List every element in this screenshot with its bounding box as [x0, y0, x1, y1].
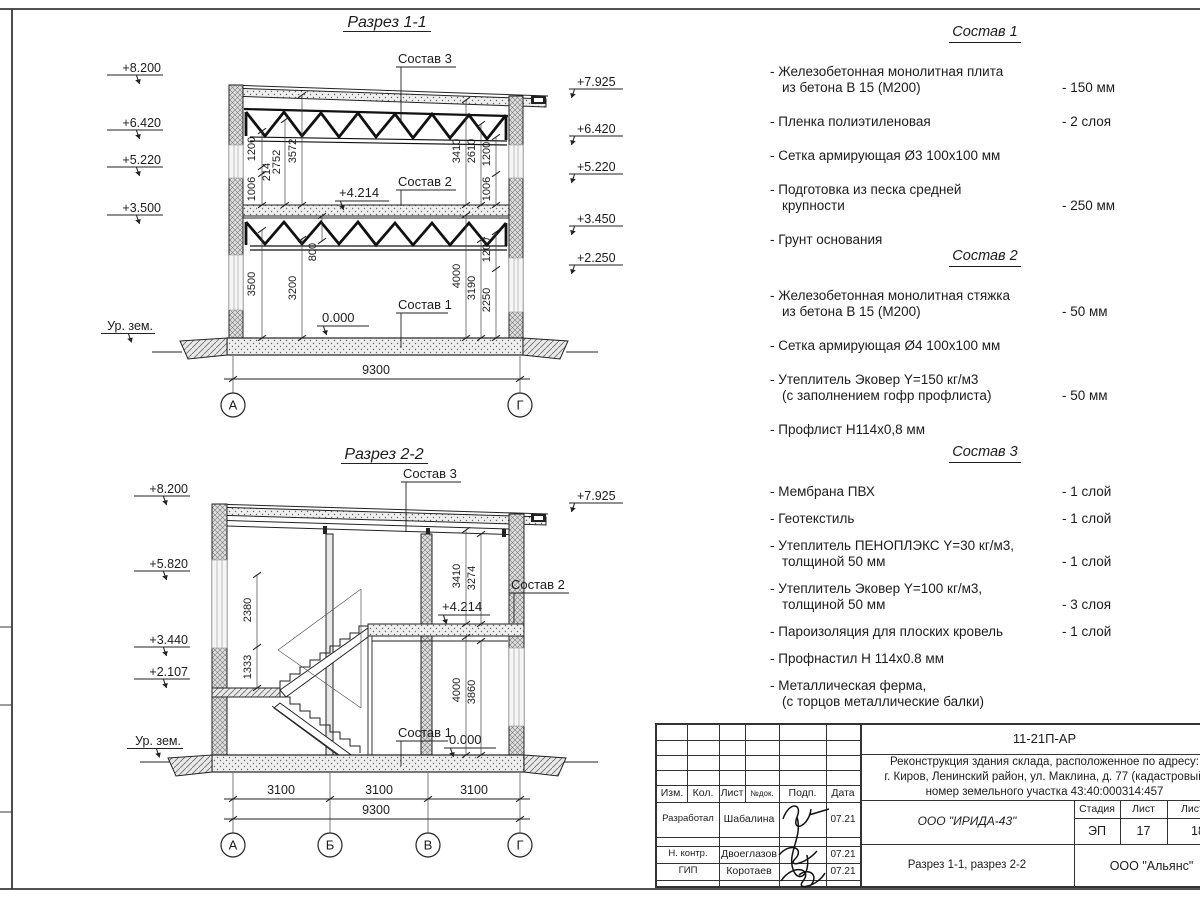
list-item: - Пароизоляция для плоских кровель- 1 сл…	[770, 624, 1200, 640]
dim: 2250	[481, 288, 493, 312]
ground-slab	[152, 338, 598, 359]
list-item: - Железобетонная монолитная плита из бет…	[770, 64, 1200, 96]
tb-col-kol: Кол.	[687, 785, 719, 802]
tb-name: Коротаев	[719, 863, 779, 880]
tb-role: ГИП	[657, 863, 719, 880]
elevation-label: +5.220	[577, 160, 616, 174]
dim: 3100	[460, 783, 488, 797]
project-name: Реконструкция здания склада, расположенн…	[860, 754, 1200, 800]
sostav-2-title: Состав 2	[770, 248, 1200, 264]
dim: 3200	[287, 276, 299, 300]
left-wall-2	[212, 504, 227, 757]
bottom-dimensions-2: 3100 3100 3100 9300	[224, 773, 530, 833]
sheet-header: Лист	[1120, 800, 1167, 818]
tb-role: Н. контр.	[657, 846, 719, 863]
elevation-label: +3.440	[149, 633, 188, 647]
list-item: - Металлическая ферма, (с торцов металли…	[770, 678, 1200, 710]
elevation-label: +2.107	[149, 665, 188, 679]
dim: 3410	[451, 139, 463, 163]
elevation-label: +8.200	[149, 482, 188, 496]
sostav-3-section: Состав 3 - Мембрана ПВХ- 1 слой - Геотек…	[770, 444, 1200, 721]
sostav-1-title: Состав 1	[770, 24, 1200, 40]
title-block: Изм. Кол. Лист №док. Подп. Дата Разработ…	[655, 723, 1200, 888]
sheets-header: Листов	[1167, 800, 1200, 818]
dim: 800	[307, 243, 319, 261]
elevation-label: +7.925	[577, 75, 616, 89]
axis-letter: Г	[516, 398, 523, 413]
sheet-title: Разрез 1-1, разрез 2-2	[860, 844, 1074, 888]
elevation-label: +6.420	[577, 122, 616, 136]
section-2-2-drawing: Разрез 2-2	[127, 446, 623, 857]
dim: 3100	[267, 783, 295, 797]
ground-level-label: Ур. зем.	[135, 734, 181, 748]
signature-scribble	[775, 841, 831, 889]
list-item: - Грунт основания	[770, 232, 1200, 248]
elevation-marks-right: +7.925 +6.420 +5.220 +3.450 +2.250	[569, 75, 623, 274]
callout-sostav1: Состав 1	[398, 725, 452, 740]
dim: 1006	[246, 177, 258, 201]
elevation-label: +6.420	[122, 116, 161, 130]
left-wall	[229, 85, 243, 338]
list-item: - Мембрана ПВХ- 1 слой	[770, 484, 1200, 500]
section-2-2-title: Разрез 2-2	[344, 446, 423, 463]
dim-width: 9300	[362, 803, 390, 817]
elevation-label: +3.450	[577, 212, 616, 226]
dim: 4000	[451, 678, 463, 702]
list-item: - Железобетонная монолитная стяжка из бе…	[770, 288, 1200, 320]
list-item: - Сетка армирующая Ø4 100х100 мм	[770, 338, 1200, 354]
axis-letter: А	[229, 398, 238, 413]
tb-role: Разработал	[657, 802, 719, 837]
sheet-value: 17	[1120, 818, 1167, 844]
dim: 4000	[451, 264, 463, 288]
tb-col-ndok: №док.	[745, 785, 779, 802]
tb-col-izm: Изм.	[657, 785, 687, 802]
level-4214: +4.214	[442, 599, 482, 614]
bottom-dimension: 9300	[224, 356, 530, 393]
list-item: - Утеплитель ПЕНОПЛЭКС Y=30 кг/м3, толщи…	[770, 538, 1200, 570]
callout-sostav3: Состав 3	[398, 51, 452, 66]
mid-floor-truss	[246, 222, 507, 250]
mezzanine-slab	[368, 624, 524, 641]
axis-letter: А	[229, 838, 238, 853]
stage-value: ЭП	[1074, 818, 1120, 844]
list-item: - Утеплитель Эковер Y=100 кг/м3, толщино…	[770, 581, 1200, 613]
dim: 1333	[242, 655, 254, 679]
ground-level-label: Ур. зем.	[107, 319, 153, 333]
callout-sostav2: Состав 2	[511, 577, 565, 592]
sostav-2-section: Состав 2 - Железобетонная монолитная стя…	[770, 248, 1200, 456]
dim: 1200	[481, 238, 493, 262]
dim: 2380	[242, 598, 254, 622]
dim: 3860	[466, 680, 478, 704]
list-item: - Профлист Н114х0,8 мм	[770, 422, 1200, 438]
roof-slab-2	[212, 504, 548, 537]
ground-slab-2	[140, 755, 598, 776]
sostav-3-title: Состав 3	[770, 444, 1200, 460]
right-wall	[509, 96, 523, 338]
level-0000: 0.000	[322, 310, 355, 325]
elevation-marks-left-2: +8.200 +5.820 +3.440 +2.107 Ур. зем.	[127, 482, 190, 758]
dim: 1006	[481, 177, 493, 201]
section-1-1-drawing: Разрез 1-1	[101, 14, 623, 417]
roof-slab	[229, 85, 548, 107]
elevation-label: +7.925	[577, 489, 616, 503]
stage-header: Стадия	[1074, 800, 1120, 818]
sostav-1-section: Состав 1 - Железобетонная монолитная пли…	[770, 24, 1200, 266]
elevation-label: +8.200	[122, 61, 161, 75]
section-1-1-title: Разрез 1-1	[347, 14, 426, 31]
elevation-marks-right-2: +7.925	[569, 489, 623, 512]
dim-width: 9300	[362, 363, 390, 377]
callout-sostav1: Состав 1	[398, 297, 452, 312]
dim: 3100	[365, 783, 393, 797]
dim: 2610	[466, 139, 478, 163]
dim: 2752	[271, 150, 283, 174]
axis-letter: Г	[516, 838, 523, 853]
list-item: - Пленка полиэтиленовая- 2 слоя	[770, 114, 1200, 130]
dim: 1200	[246, 137, 258, 161]
list-item: - Геотекстиль- 1 слой	[770, 511, 1200, 527]
axis-marks: А Г	[221, 393, 532, 417]
dim: 3410	[451, 564, 463, 588]
elevation-label: +5.220	[122, 153, 161, 167]
elevation-label: +2.250	[577, 251, 616, 265]
callout-sostav2: Состав 2	[398, 174, 452, 189]
axis-marks-2: А Б В Г	[221, 833, 532, 857]
dim: 3572	[287, 139, 299, 163]
list-item: - Подготовка из песка средней крупности-…	[770, 182, 1200, 214]
design-org: ООО "ИРИДА-43"	[860, 800, 1074, 844]
dim: 1200	[481, 142, 493, 166]
tb-col-list: Лист	[719, 785, 745, 802]
axis-letter: Б	[326, 838, 335, 853]
interior-columns	[326, 534, 432, 757]
callout-sostav3: Состав 3	[403, 466, 457, 481]
tb-name: Двоеглазов	[719, 846, 779, 863]
dim: 3500	[246, 272, 258, 296]
drawing-sheet: Разрез 1-1	[0, 0, 1200, 900]
dim: 3274	[466, 566, 478, 590]
list-item: - Сетка армирующая Ø3 100х100 мм	[770, 148, 1200, 164]
elevation-label: +3.500	[122, 201, 161, 215]
staircase	[212, 589, 368, 763]
elevation-label: +5.820	[149, 557, 188, 571]
contractor-org: ООО "Альянс"	[1074, 844, 1200, 888]
elevation-marks-left: +8.200 +6.420 +5.220 +3.500 Ур. зем.	[101, 61, 163, 343]
axis-letter: В	[424, 838, 433, 853]
dim: 3190	[466, 276, 478, 300]
tb-name: Шабалина	[719, 802, 779, 837]
list-item: - Профнастил Н 114х0.8 мм	[770, 651, 1200, 667]
document-number: 11-21П-АР	[860, 725, 1200, 754]
level-4214: +4.214	[339, 185, 379, 200]
level-0000: 0.000	[449, 732, 482, 747]
list-item: - Утеплитель Эковер Y=150 кг/м3 (с запол…	[770, 372, 1200, 404]
sheets-value: 18	[1167, 818, 1200, 844]
